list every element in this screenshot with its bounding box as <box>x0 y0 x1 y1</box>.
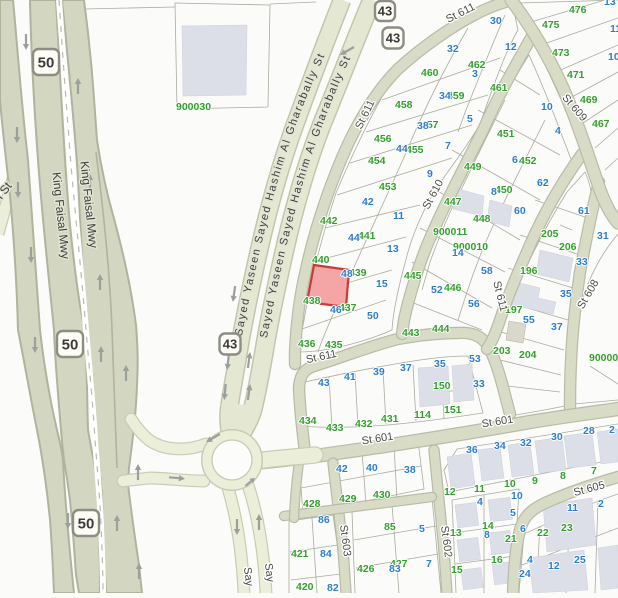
svg-text:Say: Say <box>262 562 276 583</box>
svg-text:23: 23 <box>561 522 573 534</box>
svg-text:10: 10 <box>541 101 553 113</box>
svg-text:62: 62 <box>537 177 549 189</box>
svg-text:7: 7 <box>445 140 451 152</box>
svg-text:6: 6 <box>512 154 518 166</box>
svg-text:44: 44 <box>396 143 408 155</box>
svg-text:453: 453 <box>379 181 397 193</box>
svg-text:429: 429 <box>339 493 357 505</box>
svg-text:50: 50 <box>78 515 95 532</box>
svg-text:44: 44 <box>348 232 360 244</box>
svg-text:438: 438 <box>303 295 321 307</box>
svg-text:2: 2 <box>598 498 604 510</box>
svg-text:43: 43 <box>223 337 237 352</box>
svg-text:14: 14 <box>452 247 464 259</box>
svg-text:12: 12 <box>548 560 560 572</box>
svg-text:456: 456 <box>374 133 392 145</box>
svg-text:205: 205 <box>541 228 559 240</box>
svg-text:900030: 900030 <box>176 101 211 113</box>
svg-text:6: 6 <box>520 523 526 535</box>
svg-text:7: 7 <box>426 558 432 570</box>
svg-text:196: 196 <box>520 265 538 277</box>
svg-text:82: 82 <box>327 582 339 593</box>
svg-text:434: 434 <box>299 415 317 427</box>
svg-text:35: 35 <box>434 358 446 370</box>
svg-text:447: 447 <box>444 196 462 208</box>
svg-text:432: 432 <box>355 418 373 430</box>
svg-text:11: 11 <box>393 210 404 222</box>
svg-text:42: 42 <box>336 463 348 475</box>
svg-text:11: 11 <box>474 483 485 495</box>
svg-text:Say: Say <box>241 566 255 587</box>
svg-text:421: 421 <box>291 548 309 560</box>
svg-text:441: 441 <box>358 230 376 242</box>
svg-text:50: 50 <box>38 54 55 71</box>
svg-text:420: 420 <box>296 581 314 593</box>
svg-text:36: 36 <box>466 444 478 456</box>
svg-text:440: 440 <box>312 254 330 266</box>
svg-text:460: 460 <box>421 67 439 79</box>
svg-text:10: 10 <box>504 478 516 490</box>
svg-text:452: 452 <box>519 155 537 167</box>
svg-text:9: 9 <box>532 475 538 487</box>
svg-text:900011: 900011 <box>433 226 468 238</box>
svg-text:25: 25 <box>574 554 586 566</box>
svg-text:114: 114 <box>414 409 431 421</box>
svg-text:9: 9 <box>427 168 433 180</box>
svg-text:41: 41 <box>344 371 356 383</box>
svg-text:4: 4 <box>527 554 533 566</box>
svg-text:48: 48 <box>341 268 353 280</box>
svg-text:11: 11 <box>567 502 578 514</box>
svg-text:443: 443 <box>402 327 420 339</box>
svg-text:43: 43 <box>386 31 400 46</box>
svg-text:8: 8 <box>560 470 566 482</box>
svg-text:33: 33 <box>473 378 485 390</box>
svg-text:60: 60 <box>514 205 526 217</box>
svg-text:203: 203 <box>493 345 511 357</box>
svg-text:31: 31 <box>597 230 609 242</box>
svg-text:8: 8 <box>484 529 490 541</box>
svg-text:13: 13 <box>604 0 616 8</box>
svg-text:42: 42 <box>362 196 374 208</box>
svg-text:50: 50 <box>367 310 379 322</box>
svg-text:10: 10 <box>608 51 618 63</box>
svg-text:431: 431 <box>381 413 399 425</box>
svg-text:84: 84 <box>320 548 332 560</box>
svg-text:428: 428 <box>303 498 321 510</box>
svg-text:471: 471 <box>567 69 585 81</box>
svg-text:32: 32 <box>520 437 532 449</box>
svg-text:30: 30 <box>551 431 563 443</box>
svg-text:458: 458 <box>395 99 413 111</box>
svg-text:53: 53 <box>469 353 481 365</box>
svg-text:86: 86 <box>318 514 330 526</box>
svg-text:473: 473 <box>552 47 570 59</box>
svg-text:476: 476 <box>569 4 587 16</box>
svg-text:151: 151 <box>444 404 462 416</box>
svg-text:85: 85 <box>384 521 396 533</box>
svg-text:11: 11 <box>610 23 618 35</box>
svg-text:206: 206 <box>559 241 577 253</box>
svg-text:55: 55 <box>523 314 535 326</box>
svg-text:34: 34 <box>494 440 506 452</box>
svg-text:28: 28 <box>583 425 595 437</box>
svg-text:454: 454 <box>368 155 386 167</box>
svg-text:22: 22 <box>537 527 549 539</box>
svg-text:52: 52 <box>431 284 443 296</box>
svg-text:449: 449 <box>464 161 482 173</box>
svg-text:83: 83 <box>389 563 401 575</box>
svg-text:430: 430 <box>373 489 391 501</box>
svg-text:450: 450 <box>495 184 513 196</box>
svg-text:461: 461 <box>490 82 508 94</box>
svg-text:445: 445 <box>404 270 422 282</box>
svg-text:38: 38 <box>417 120 429 132</box>
svg-text:58: 58 <box>481 265 493 277</box>
svg-text:34: 34 <box>439 90 451 102</box>
svg-text:5: 5 <box>419 523 425 535</box>
svg-text:46: 46 <box>330 304 342 316</box>
svg-text:43: 43 <box>318 377 330 389</box>
svg-text:150: 150 <box>433 380 451 392</box>
svg-text:12: 12 <box>444 486 456 498</box>
svg-text:38: 38 <box>404 464 416 476</box>
svg-text:467: 467 <box>592 118 610 130</box>
svg-text:35: 35 <box>560 288 572 300</box>
svg-text:21: 21 <box>505 533 517 545</box>
svg-text:451: 451 <box>497 128 515 140</box>
svg-text:448: 448 <box>473 213 491 225</box>
svg-text:444: 444 <box>432 323 450 335</box>
svg-text:13: 13 <box>387 243 399 255</box>
svg-text:469: 469 <box>580 94 598 106</box>
svg-text:12: 12 <box>505 41 517 53</box>
svg-text:433: 433 <box>326 422 344 434</box>
svg-text:37: 37 <box>551 321 563 333</box>
svg-text:900005: 900005 <box>589 352 618 364</box>
svg-text:442: 442 <box>320 215 338 227</box>
svg-text:37: 37 <box>400 362 412 374</box>
svg-text:7: 7 <box>591 465 597 477</box>
svg-text:446: 446 <box>444 282 462 294</box>
svg-text:39: 39 <box>373 366 385 378</box>
svg-text:8: 8 <box>491 186 497 198</box>
svg-text:3: 3 <box>472 68 478 80</box>
svg-text:455: 455 <box>406 144 424 156</box>
svg-text:5: 5 <box>467 113 473 125</box>
svg-text:33: 33 <box>576 256 588 268</box>
svg-text:30: 30 <box>490 15 502 27</box>
svg-text:5: 5 <box>510 507 516 519</box>
svg-text:43: 43 <box>378 4 392 19</box>
svg-text:40: 40 <box>366 462 378 474</box>
svg-text:56: 56 <box>468 298 480 310</box>
svg-text:10: 10 <box>511 490 523 502</box>
svg-text:475: 475 <box>542 19 560 31</box>
svg-text:15: 15 <box>451 564 463 576</box>
svg-text:426: 426 <box>357 563 375 575</box>
svg-text:16: 16 <box>491 554 503 566</box>
svg-text:4: 4 <box>477 496 483 508</box>
svg-text:61: 61 <box>578 205 590 217</box>
svg-text:204: 204 <box>519 349 537 361</box>
svg-text:4: 4 <box>555 125 561 137</box>
svg-text:24: 24 <box>519 568 531 580</box>
svg-text:436: 436 <box>298 338 316 350</box>
svg-text:2: 2 <box>609 424 615 436</box>
svg-text:32: 32 <box>447 43 459 55</box>
svg-text:15: 15 <box>376 278 388 290</box>
svg-text:50: 50 <box>62 336 79 353</box>
